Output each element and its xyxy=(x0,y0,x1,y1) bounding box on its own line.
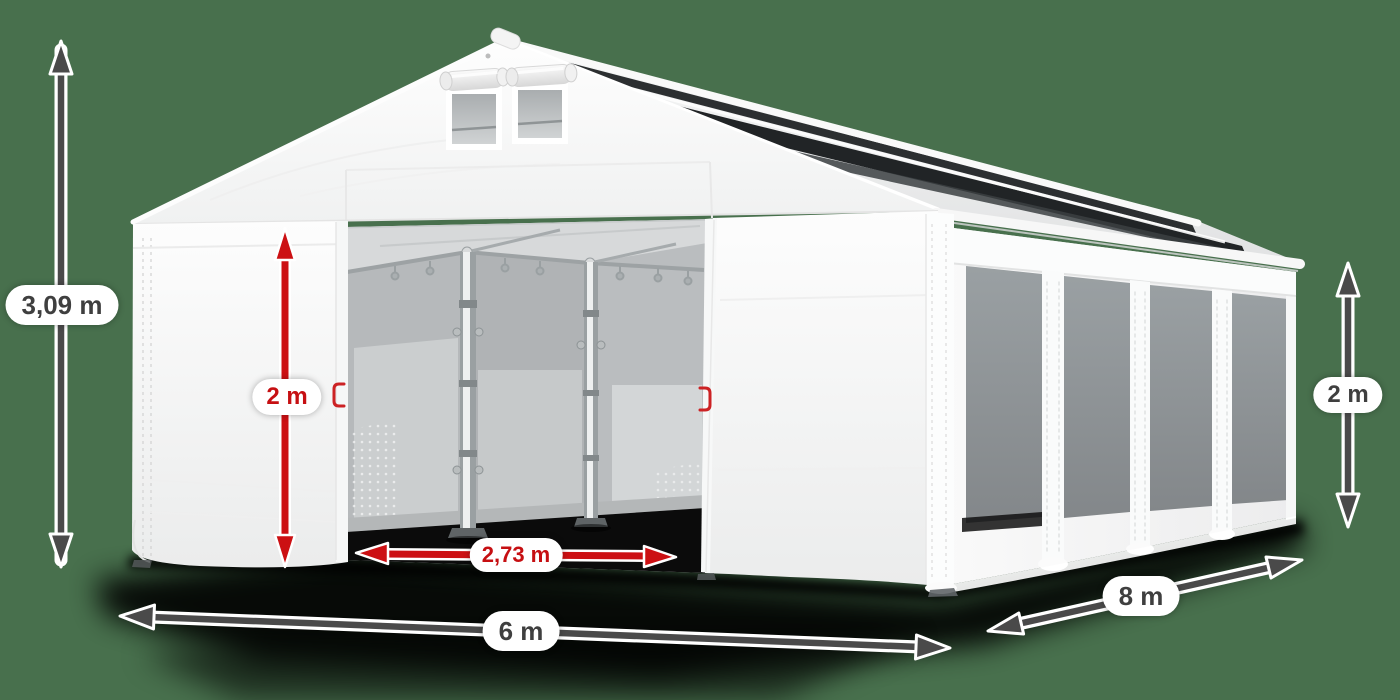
front-width-value: 6 m xyxy=(499,616,544,646)
tent-product-image: 3,09 m 2 m 2,73 m 6 m 8 m 2 m xyxy=(0,0,1400,700)
interior-window xyxy=(478,370,582,512)
side-length-value: 8 m xyxy=(1119,581,1164,611)
wall-height-value: 2 m xyxy=(1327,381,1368,408)
entrance-height-value: 2 m xyxy=(266,383,307,410)
total-height-label: 3,09 m xyxy=(6,285,119,325)
tent-illustration xyxy=(0,0,1400,700)
side-window-3 xyxy=(1150,285,1212,511)
side-window-4 xyxy=(1232,293,1288,504)
entrance-width-value: 2,73 m xyxy=(482,542,551,567)
gable-window-right xyxy=(505,64,577,144)
front-corner-post xyxy=(925,212,958,597)
entrance-height-label: 2 m xyxy=(252,379,321,415)
total-height-value: 3,09 m xyxy=(22,290,103,320)
side-length-label: 8 m xyxy=(1103,576,1180,616)
side-window-1 xyxy=(966,266,1042,523)
front-right-panel xyxy=(700,211,938,586)
gable-window-left xyxy=(439,68,509,150)
side-window-2 xyxy=(1064,276,1130,518)
entrance-interior xyxy=(340,210,720,580)
entrance-width-label: 2,73 m xyxy=(470,538,563,572)
wall-height-label: 2 m xyxy=(1313,377,1382,413)
front-width-label: 6 m xyxy=(483,611,560,651)
